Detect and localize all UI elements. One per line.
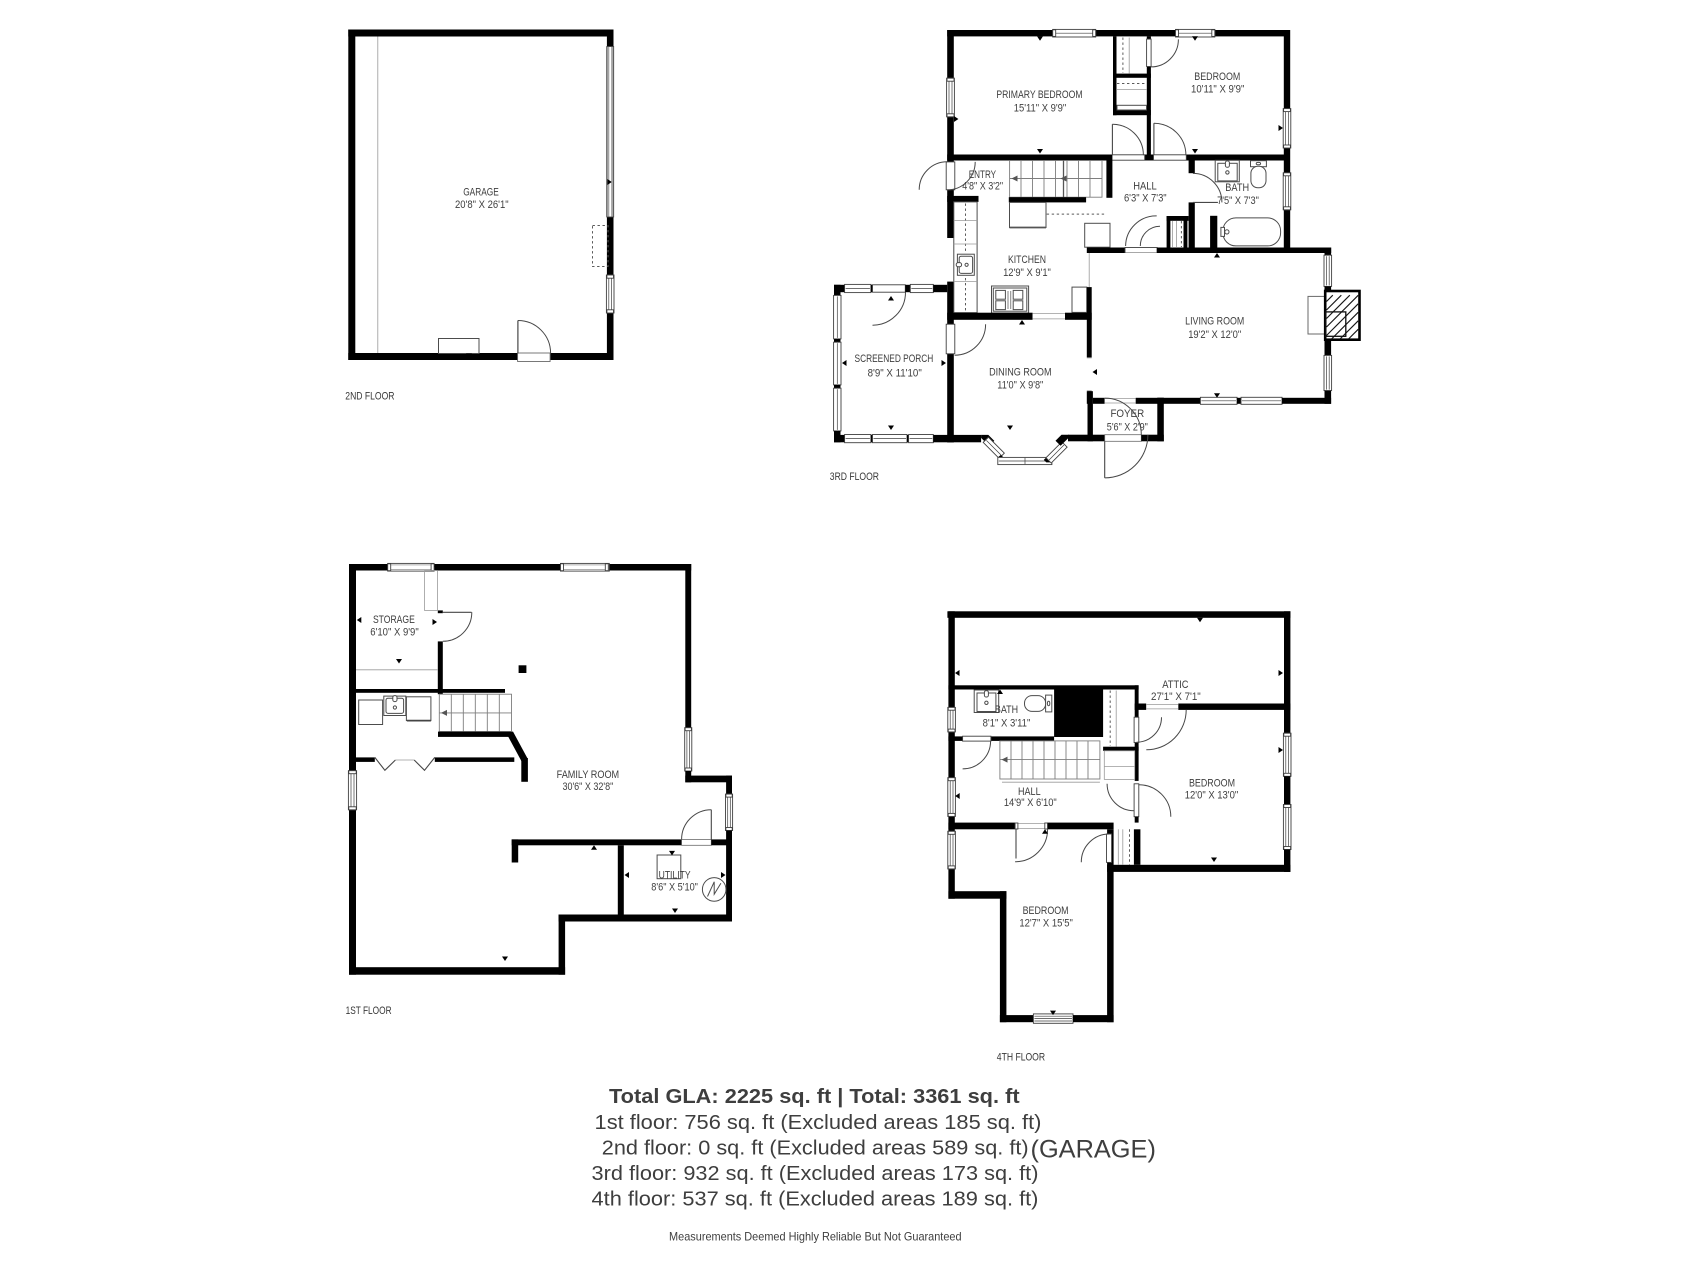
svg-text:(GARAGE): (GARAGE) (1031, 1136, 1156, 1164)
svg-text:4'8" X 3'2": 4'8" X 3'2" (962, 181, 1003, 193)
svg-text:ATTIC: ATTIC (1162, 679, 1189, 691)
svg-text:STORAGE: STORAGE (373, 614, 415, 626)
svg-text:27'1" X 7'1": 27'1" X 7'1" (1151, 691, 1201, 703)
svg-text:Measurements Deemed Highly Rel: Measurements Deemed Highly Reliable But … (669, 1230, 962, 1244)
svg-text:BATH: BATH (1225, 182, 1249, 194)
svg-text:8'6" X 5'10": 8'6" X 5'10" (651, 882, 698, 894)
svg-text:8'1" X 3'11": 8'1" X 3'11" (983, 718, 1031, 730)
svg-text:6'10" X 9'9": 6'10" X 9'9" (370, 627, 419, 639)
svg-text:19'2" X 12'0": 19'2" X 12'0" (1188, 329, 1241, 341)
svg-text:15'11" X 9'9": 15'11" X 9'9" (1014, 103, 1067, 115)
svg-text:BATH: BATH (995, 704, 1018, 716)
svg-text:12'7" X 15'5": 12'7" X 15'5" (1019, 918, 1073, 930)
svg-text:1st floor: 756 sq. ft (Exclude: 1st floor: 756 sq. ft (Excluded areas 18… (595, 1111, 1042, 1134)
svg-text:5'6" X 2'9": 5'6" X 2'9" (1107, 422, 1148, 434)
svg-text:7'5" X 7'3": 7'5" X 7'3" (1217, 195, 1259, 207)
svg-text:4th floor: 537 sq. ft (Exclude: 4th floor: 537 sq. ft (Excluded areas 18… (592, 1188, 1039, 1211)
svg-text:1ST FLOOR: 1ST FLOOR (346, 1005, 392, 1017)
svg-text:HALL: HALL (1133, 181, 1157, 193)
svg-text:11'0" X 9'8": 11'0" X 9'8" (997, 380, 1043, 392)
svg-text:3rd floor: 932 sq. ft (Exclude: 3rd floor: 932 sq. ft (Excluded areas 17… (592, 1162, 1039, 1185)
svg-text:8'9" X 11'10": 8'9" X 11'10" (868, 368, 922, 380)
svg-text:SCREENED PORCH: SCREENED PORCH (855, 353, 934, 365)
svg-text:ENTRY: ENTRY (969, 169, 996, 181)
svg-text:FOYER: FOYER (1110, 408, 1144, 420)
svg-text:12'0" X 13'0": 12'0" X 13'0" (1185, 790, 1239, 802)
svg-text:DINING ROOM: DINING ROOM (989, 367, 1051, 379)
svg-text:PRIMARY BEDROOM: PRIMARY BEDROOM (996, 89, 1082, 101)
svg-text:BEDROOM: BEDROOM (1023, 905, 1069, 917)
svg-text:20'8" X 26'1": 20'8" X 26'1" (455, 199, 509, 211)
svg-text:30'6" X 32'8": 30'6" X 32'8" (562, 781, 613, 793)
svg-text:12'9" X 9'1": 12'9" X 9'1" (1003, 267, 1051, 279)
svg-text:BEDROOM: BEDROOM (1189, 778, 1235, 790)
svg-text:FAMILY ROOM: FAMILY ROOM (557, 769, 620, 781)
svg-text:LIVING ROOM: LIVING ROOM (1185, 316, 1244, 328)
svg-text:10'11" X 9'9": 10'11" X 9'9" (1191, 84, 1245, 96)
svg-text:BEDROOM: BEDROOM (1194, 71, 1240, 83)
svg-text:UTILITY: UTILITY (659, 870, 691, 882)
svg-text:3RD FLOOR: 3RD FLOOR (830, 471, 879, 483)
svg-text:4TH FLOOR: 4TH FLOOR (997, 1052, 1046, 1064)
svg-text:2nd floor: 0 sq. ft (Excluded: 2nd floor: 0 sq. ft (Excluded areas 589 … (602, 1137, 1029, 1160)
svg-text:2ND FLOOR: 2ND FLOOR (345, 391, 394, 403)
svg-text:Total GLA: 2225 sq. ft | Total: Total GLA: 2225 sq. ft | Total: 3361 sq.… (609, 1085, 1020, 1108)
svg-text:14'9" X 6'10": 14'9" X 6'10" (1004, 797, 1057, 809)
svg-text:GARAGE: GARAGE (463, 187, 499, 199)
svg-text:6'3" X 7'3": 6'3" X 7'3" (1124, 193, 1167, 205)
svg-text:KITCHEN: KITCHEN (1008, 254, 1046, 266)
